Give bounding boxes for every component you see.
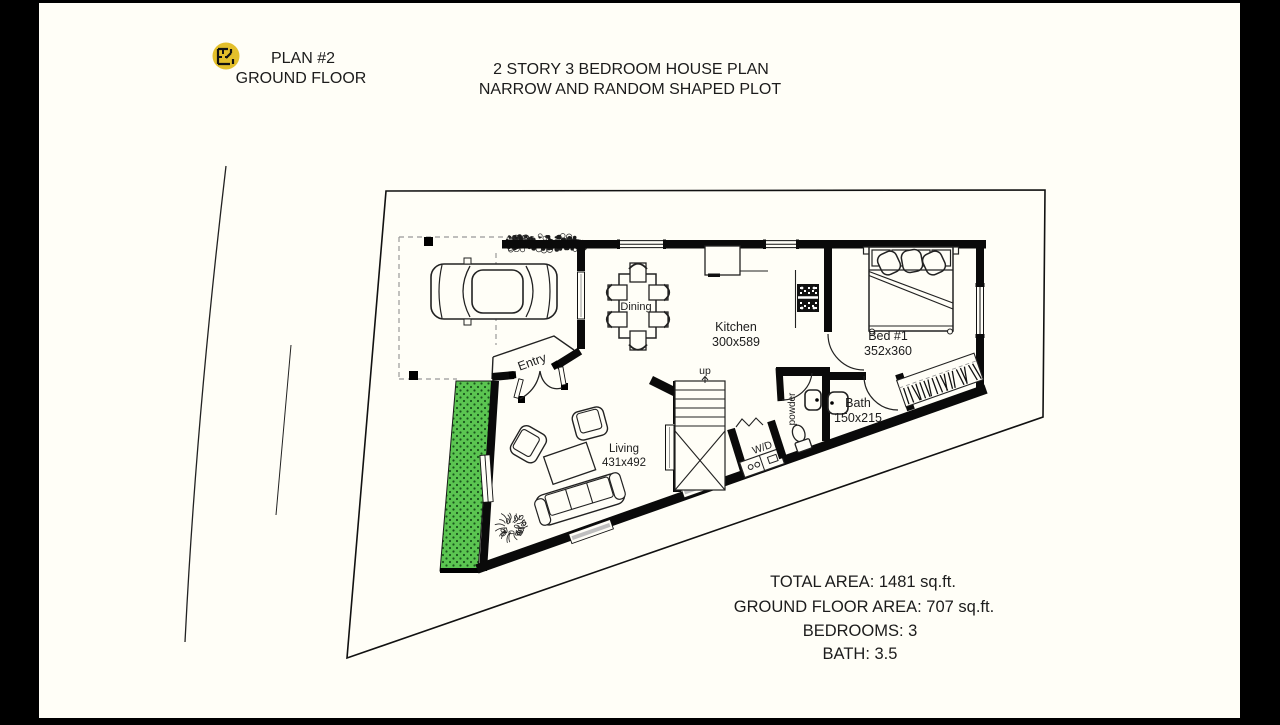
svg-text:Living: Living	[609, 443, 639, 455]
svg-text:431x492: 431x492	[602, 457, 646, 469]
svg-text:TOTAL AREA: 1481 sq.ft.: TOTAL AREA: 1481 sq.ft.	[770, 573, 956, 591]
svg-text:Dining: Dining	[620, 301, 651, 313]
svg-text:Bed #1: Bed #1	[868, 329, 908, 343]
svg-text:300x589: 300x589	[712, 335, 760, 349]
svg-text:NARROW AND RANDOM SHAPED PLOT: NARROW AND RANDOM SHAPED PLOT	[479, 81, 781, 98]
svg-text:GROUND FLOOR AREA: 707 sq.ft.: GROUND FLOOR AREA: 707 sq.ft.	[734, 598, 994, 616]
svg-text:up: up	[699, 365, 711, 377]
svg-text:Kitchen: Kitchen	[715, 320, 757, 334]
svg-text:Bath: Bath	[845, 396, 871, 410]
svg-text:BATH: 3.5: BATH: 3.5	[823, 645, 898, 663]
svg-text:2 STORY 3 BEDROOM HOUSE PLAN: 2 STORY 3 BEDROOM HOUSE PLAN	[493, 61, 769, 78]
svg-text:powder: powder	[787, 392, 798, 425]
svg-text:BEDROOMS: 3: BEDROOMS: 3	[803, 622, 918, 640]
svg-text:GROUND FLOOR: GROUND FLOOR	[236, 70, 367, 87]
svg-text:PLAN #2: PLAN #2	[271, 50, 335, 67]
svg-text:352x360: 352x360	[864, 344, 912, 358]
svg-text:150x215: 150x215	[834, 411, 882, 425]
